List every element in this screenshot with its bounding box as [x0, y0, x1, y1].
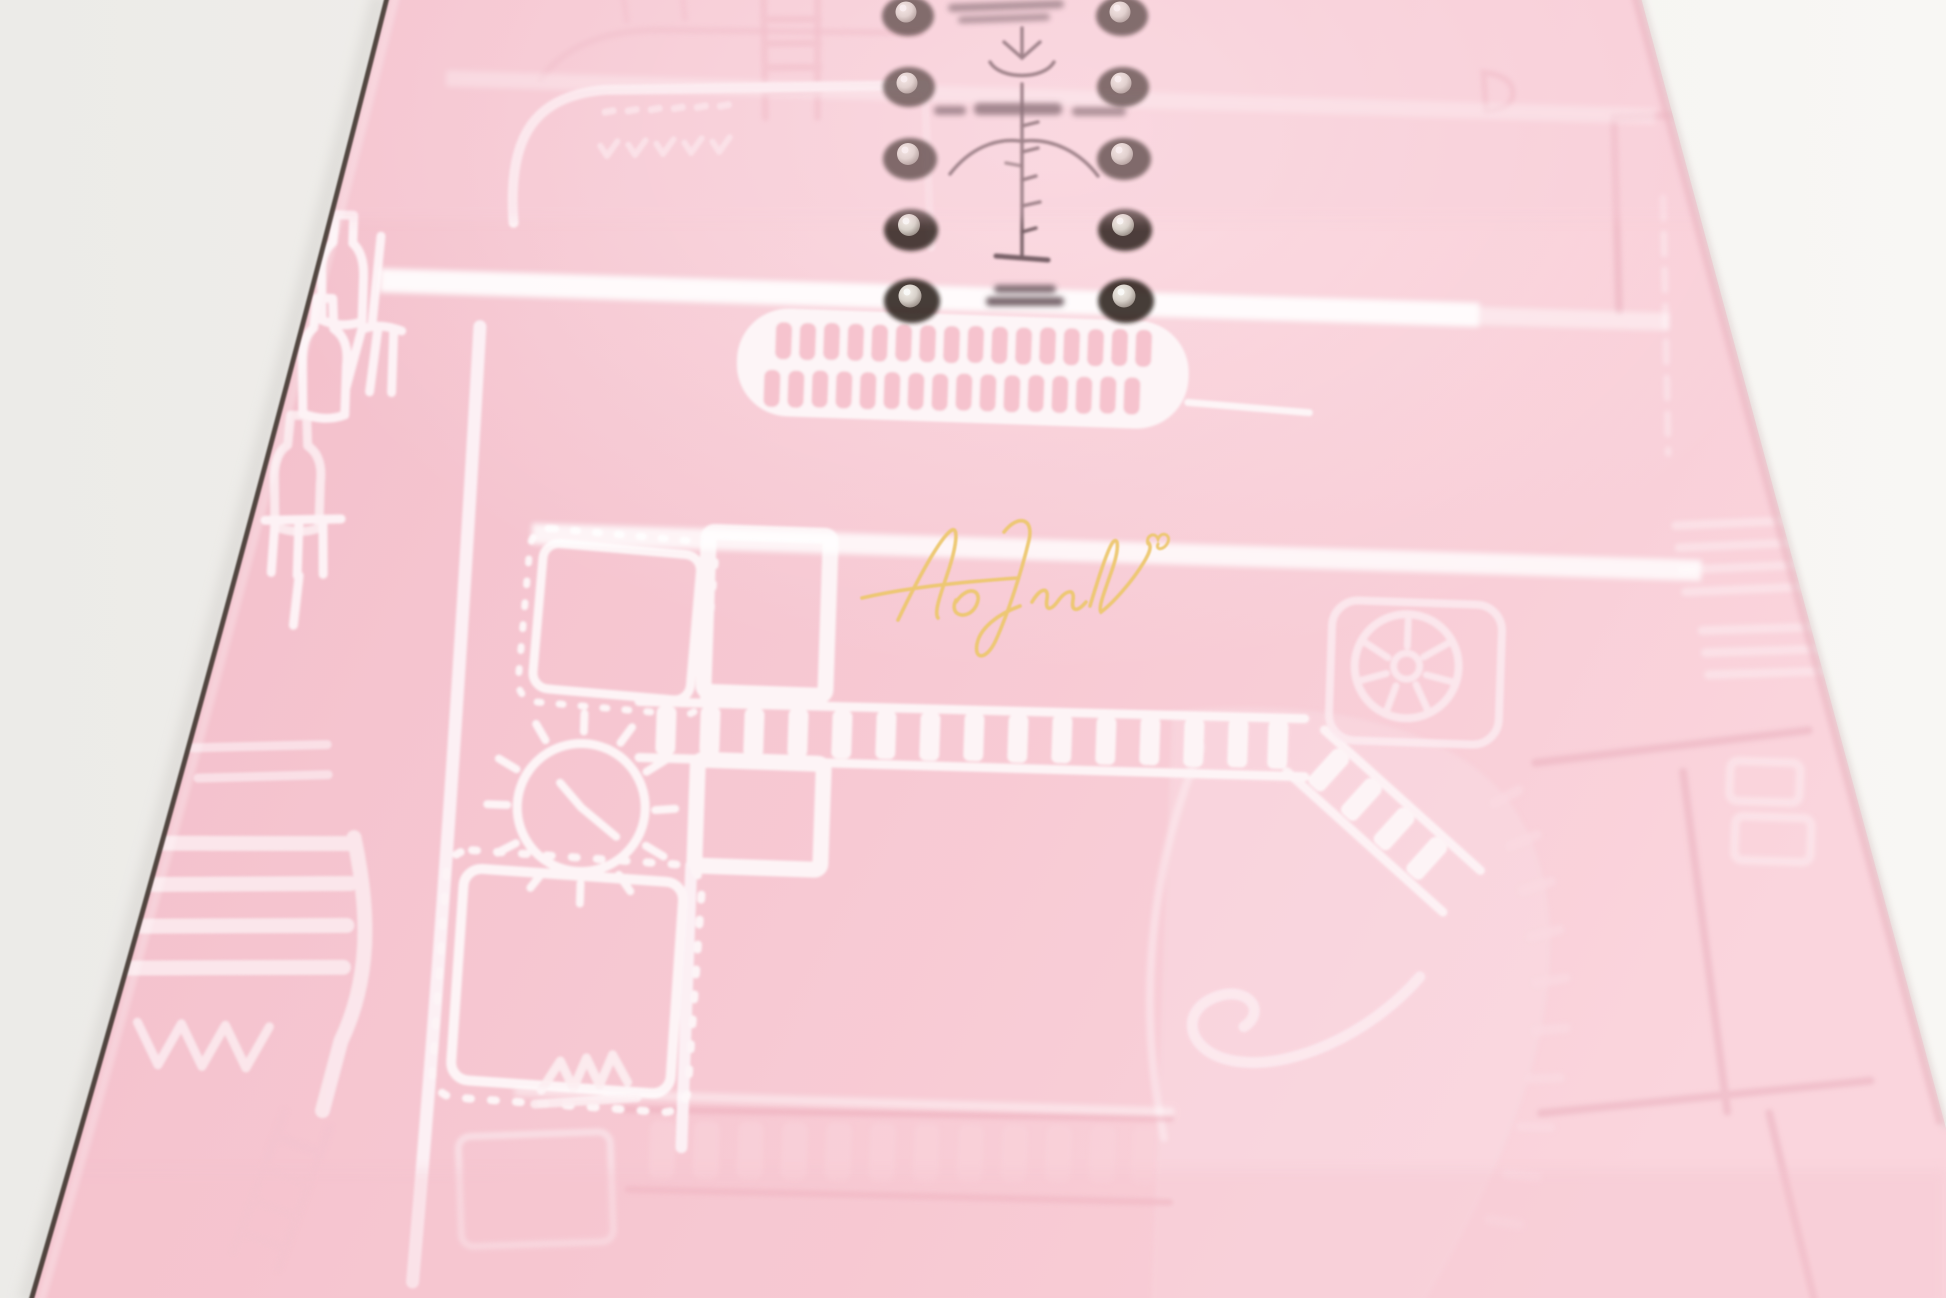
camber-text-line-1 — [994, 285, 1056, 293]
photo-stage: Close-up product photograph of a pastel … — [0, 0, 1946, 1298]
snowboard-photo-svg — [0, 0, 1946, 1298]
insert-screw — [1098, 279, 1154, 323]
dof-bottom-haze — [0, 1170, 1946, 1298]
product-photo: Close-up product photograph of a pastel … — [0, 0, 1946, 1298]
camber-text-line-2 — [986, 297, 1064, 306]
insert-screw — [884, 279, 940, 323]
